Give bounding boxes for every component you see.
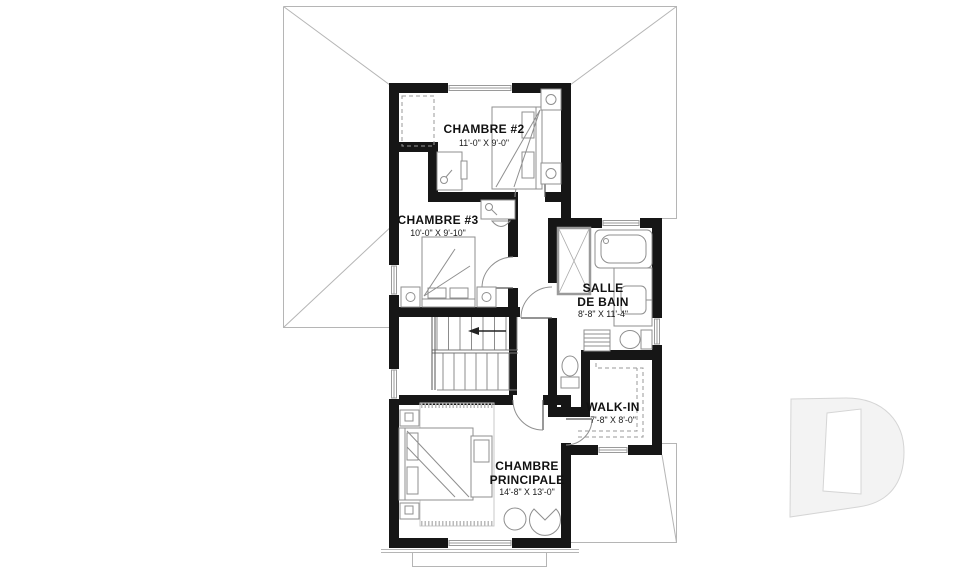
- window-left-stairhall: [389, 369, 399, 399]
- bed-chambre3: [422, 237, 475, 307]
- room-label-chambre2: CHAMBRE #2: [443, 122, 524, 136]
- room-label-master-2: PRINCIPALE: [490, 473, 565, 487]
- room-dims-master: 14'-8" X 13'-0": [499, 487, 555, 497]
- room-label-salle-de-bain-1: SALLE: [583, 281, 624, 295]
- toilet-wc: [561, 356, 579, 388]
- room-dims-chambre2: 11'-0" X 9'-0": [459, 138, 509, 148]
- bench: [471, 436, 492, 497]
- bathtub: [595, 230, 652, 268]
- bed-master: [399, 428, 473, 500]
- stair-direction-arrow: [468, 327, 506, 335]
- room-label-chambre3: CHAMBRE #3: [397, 213, 478, 227]
- armchair: [530, 509, 561, 535]
- window-top-chambre2: [448, 83, 512, 93]
- nightstand: [401, 287, 420, 307]
- window-bath-top: [602, 218, 640, 228]
- closet-rod-dashed: [402, 96, 434, 146]
- room-dims-salle-de-bain: 8'-8" X 11'-4": [578, 309, 628, 319]
- room-label-salle-de-bain-2: DE BAIN: [577, 295, 628, 309]
- door-chambre-principale: [513, 400, 543, 430]
- door-walk-in: [566, 419, 592, 445]
- nightstand: [541, 89, 561, 110]
- bed-chambre2: [492, 107, 542, 189]
- linen-shelves: [584, 330, 610, 351]
- round-table: [504, 508, 526, 530]
- toilet-bathroom: [620, 330, 652, 349]
- room-label-walk-in: WALK-IN: [586, 400, 639, 414]
- door-chambre3: [482, 257, 513, 288]
- floor-plan-drawing: CHAMBRE #2 11'-0" X 9'-0" CHAMBRE #3 10'…: [0, 0, 960, 569]
- nightstand: [477, 287, 496, 307]
- nightstand: [400, 503, 419, 519]
- room-label-master-1: CHAMBRE: [495, 459, 558, 473]
- window-left-chambre3: [389, 265, 399, 295]
- window-walkin-bottom: [598, 445, 628, 455]
- room-dims-chambre3: 10'-0" X 9'-10": [410, 228, 466, 238]
- nightstand: [400, 410, 419, 426]
- nightstand: [541, 163, 561, 184]
- window-bottom-master: [448, 538, 512, 548]
- porch-outline: [413, 553, 547, 567]
- door-salle-de-bain: [521, 287, 552, 318]
- drummond-d-logo-watermark: [790, 398, 904, 517]
- window-bath-right: [652, 318, 662, 345]
- floor-plan-page: CHAMBRE #2 11'-0" X 9'-0" CHAMBRE #3 10'…: [0, 0, 960, 569]
- staircase: [432, 317, 518, 390]
- desk-chambre2: [437, 152, 467, 190]
- room-dims-walk-in: 7'-8" X 8'-0": [590, 415, 636, 425]
